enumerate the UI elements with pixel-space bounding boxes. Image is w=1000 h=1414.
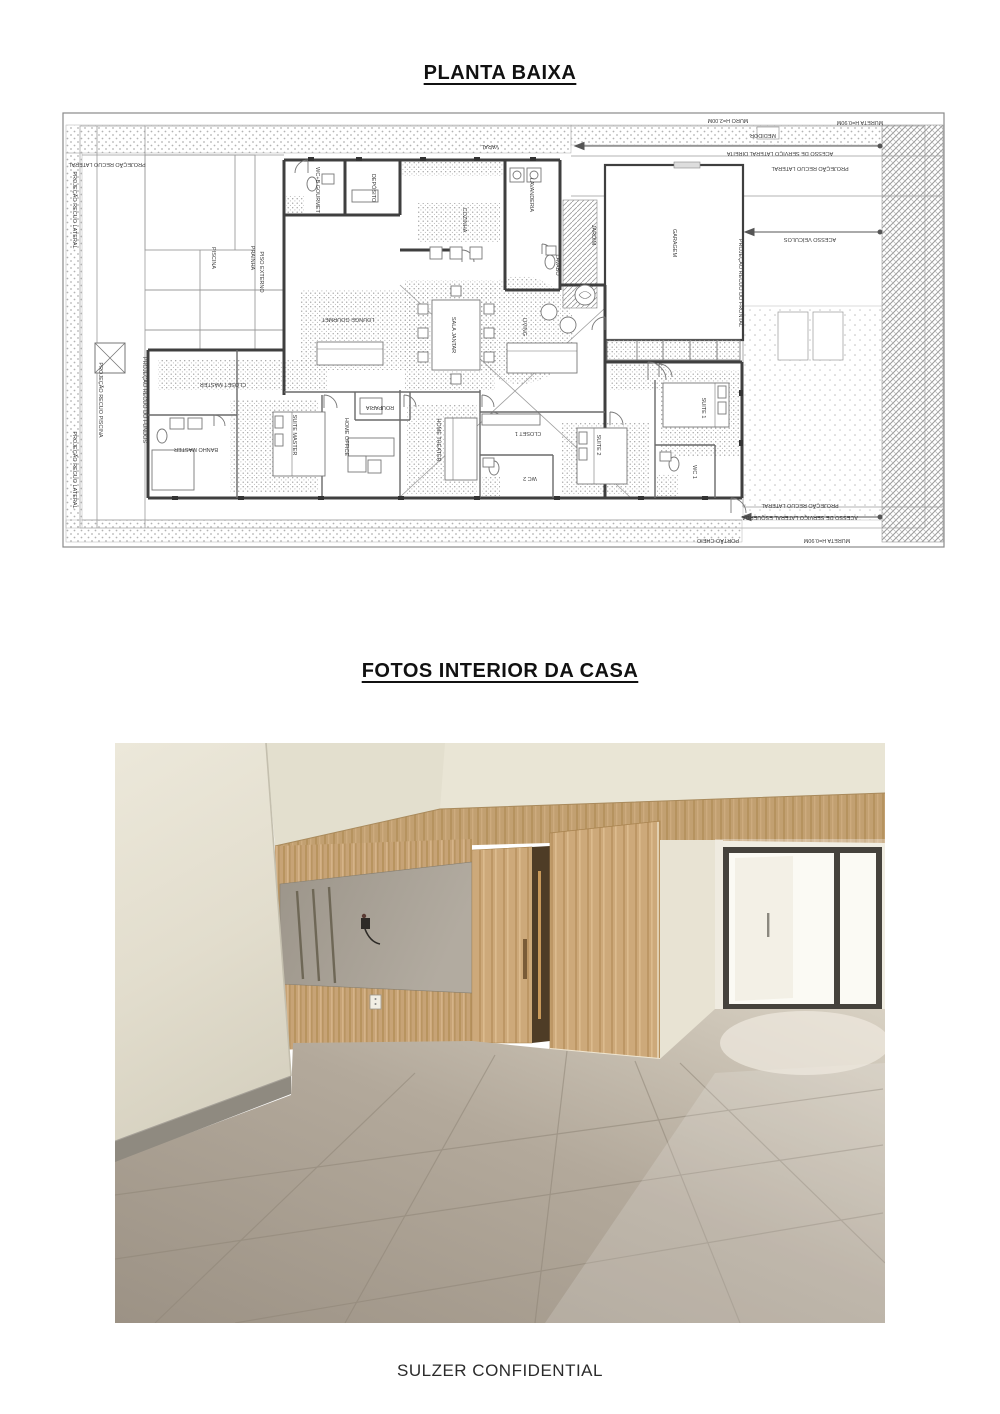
sliding-door-right [550,821,660,1059]
page-title-fotos-interior: FOTOS INTERIOR DA CASA [0,660,1000,683]
power-outlet [370,995,381,1009]
confidential-footer: SULZER CONFIDENTIAL [0,1361,1000,1381]
pool-equipment-box [95,343,125,373]
floor-plan-drawing [62,112,945,548]
door-handle [523,939,527,979]
document-page: PLANTA BAIXA [0,0,1000,1414]
garage [605,162,743,360]
floor-plan: PROJEÇÃO RECUO LATERALMURO H=2.00MMEDIDO… [62,112,945,548]
interior-photo-drawing [115,743,885,1323]
tv-board [280,862,472,993]
interior-photo [115,743,885,1323]
foreground-wall [115,743,291,1162]
page-title-planta-baixa: PLANTA BAIXA [0,62,1000,85]
